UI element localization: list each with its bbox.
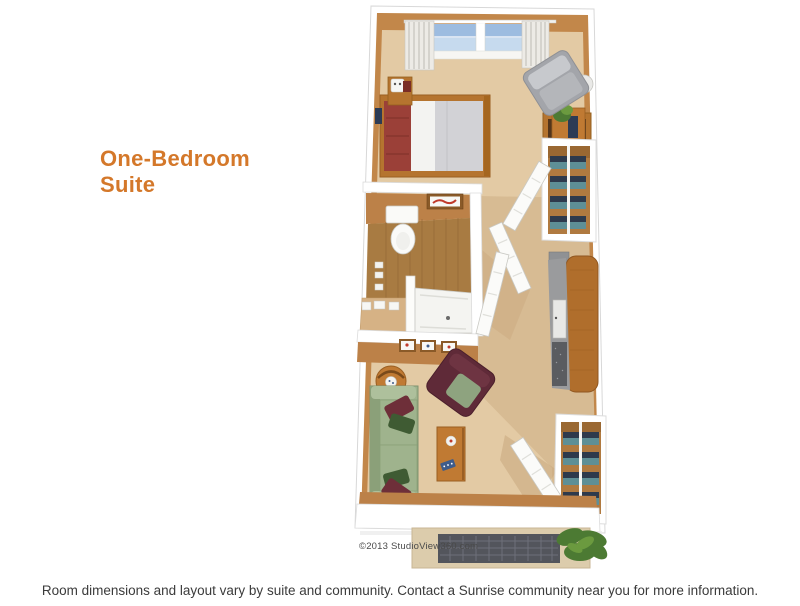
bathroom-partition	[406, 276, 415, 333]
bed-sheet	[411, 101, 435, 171]
page: One-Bedroom Suite	[0, 0, 800, 606]
copyright-credit: ©2013 StudioView360.com	[359, 541, 478, 552]
kitchenette	[548, 252, 598, 392]
sink	[374, 301, 385, 309]
coffee-table	[437, 427, 465, 481]
floorplan-svg	[340, 0, 660, 580]
linen-closet	[542, 138, 596, 242]
kitchen-counter	[566, 256, 598, 392]
kitchen-appliance-white	[553, 300, 566, 338]
bed	[380, 95, 490, 177]
floorplan-figure	[340, 0, 660, 580]
shower-tub	[415, 288, 472, 333]
footer-caption: Room dimensions and layout vary by suite…	[0, 583, 800, 598]
bathroom-art-frame	[427, 194, 463, 209]
nightstand	[388, 77, 412, 105]
page-title-line1: One-Bedroom	[100, 146, 250, 172]
window-sill	[430, 51, 528, 59]
faucet	[446, 316, 450, 320]
wall-picture-small	[375, 108, 382, 124]
sofa	[370, 386, 418, 507]
living-wall-frames	[399, 339, 457, 353]
table-lamp	[391, 79, 404, 92]
page-title: One-Bedroom Suite	[100, 146, 250, 198]
vanity	[360, 298, 408, 332]
page-title-line2: Suite	[100, 172, 250, 198]
curtain-left	[405, 21, 434, 70]
window-mullion	[476, 23, 485, 52]
bedroom-bathroom-wall	[363, 182, 482, 194]
towel-shelf	[375, 262, 383, 290]
bed-duvet	[435, 101, 483, 171]
kitchen-appliance-dark	[552, 342, 567, 386]
